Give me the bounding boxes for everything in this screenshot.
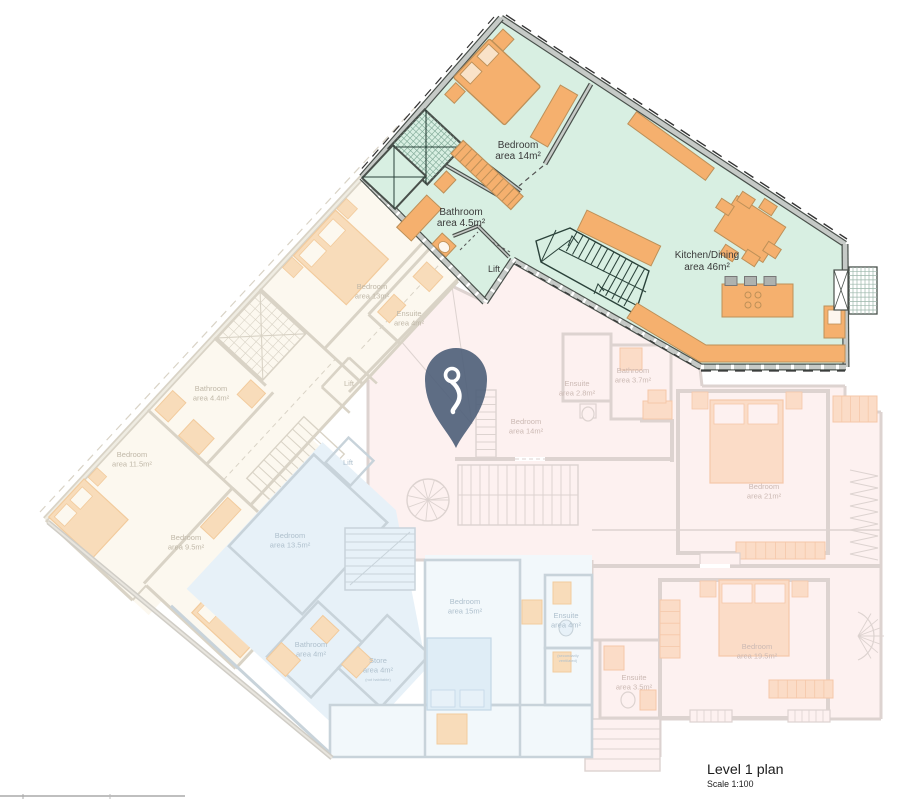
svg-text:Bedroom: Bedroom	[742, 642, 772, 651]
svg-text:area 2.8m²: area 2.8m²	[559, 389, 596, 398]
svg-text:area 3.7m²: area 3.7m²	[615, 376, 652, 385]
svg-text:Bedroom: Bedroom	[117, 450, 147, 459]
svg-text:area 46m²: area 46m²	[684, 262, 730, 273]
svg-text:Bedroom: Bedroom	[171, 533, 201, 542]
svg-text:Bedroom: Bedroom	[357, 282, 387, 291]
svg-text:Lift: Lift	[488, 264, 501, 274]
svg-text:area 4.5m²: area 4.5m²	[437, 218, 486, 229]
svg-text:Bedroom: Bedroom	[275, 531, 305, 540]
svg-text:Ensuite: Ensuite	[621, 673, 646, 682]
svg-text:area 14m²: area 14m²	[495, 151, 541, 162]
svg-text:(not habitable): (not habitable)	[365, 677, 391, 682]
svg-text:Bedroom: Bedroom	[498, 140, 539, 151]
svg-text:Scale 1:100: Scale 1:100	[707, 779, 754, 789]
svg-text:Bathroom: Bathroom	[195, 384, 228, 393]
svg-text:Bedroom: Bedroom	[450, 597, 480, 606]
svg-text:ventilated): ventilated)	[559, 658, 578, 663]
svg-text:area 4m²: area 4m²	[551, 621, 582, 630]
svg-text:area 3.5m²: area 3.5m²	[616, 683, 653, 692]
svg-text:Bedroom: Bedroom	[511, 417, 541, 426]
svg-text:area 4.4m²: area 4.4m²	[193, 394, 230, 403]
svg-text:area 13.5m²: area 13.5m²	[270, 541, 311, 550]
svg-text:area 13m²: area 13m²	[355, 292, 390, 301]
svg-text:area 21m²: area 21m²	[747, 492, 782, 501]
svg-text:area 4m²: area 4m²	[363, 666, 394, 675]
svg-text:Bedroom: Bedroom	[749, 482, 779, 491]
svg-text:Ensuite: Ensuite	[564, 379, 589, 388]
svg-text:Lift: Lift	[343, 458, 354, 467]
svg-text:Level 1 plan: Level 1 plan	[707, 762, 784, 778]
svg-text:area 15m²: area 15m²	[448, 607, 483, 616]
svg-text:Lift: Lift	[344, 379, 355, 388]
svg-text:Ensuite: Ensuite	[396, 309, 421, 318]
svg-text:area 11.5m²: area 11.5m²	[112, 460, 152, 469]
svg-text:Bathroom: Bathroom	[439, 207, 482, 218]
svg-text:area 19.5m²: area 19.5m²	[737, 652, 778, 661]
svg-text:area 14m²: area 14m²	[509, 427, 544, 436]
svg-text:area 4m²: area 4m²	[296, 650, 327, 659]
svg-text:Bathroom: Bathroom	[617, 366, 650, 375]
svg-text:area 9.5m²: area 9.5m²	[168, 543, 205, 552]
svg-text:Bathroom: Bathroom	[295, 640, 328, 649]
svg-text:area 4m²: area 4m²	[394, 319, 425, 328]
svg-text:Kitchen/Dining: Kitchen/Dining	[675, 250, 739, 261]
svg-text:Store: Store	[369, 656, 387, 665]
svg-text:Ensuite: Ensuite	[553, 611, 578, 620]
